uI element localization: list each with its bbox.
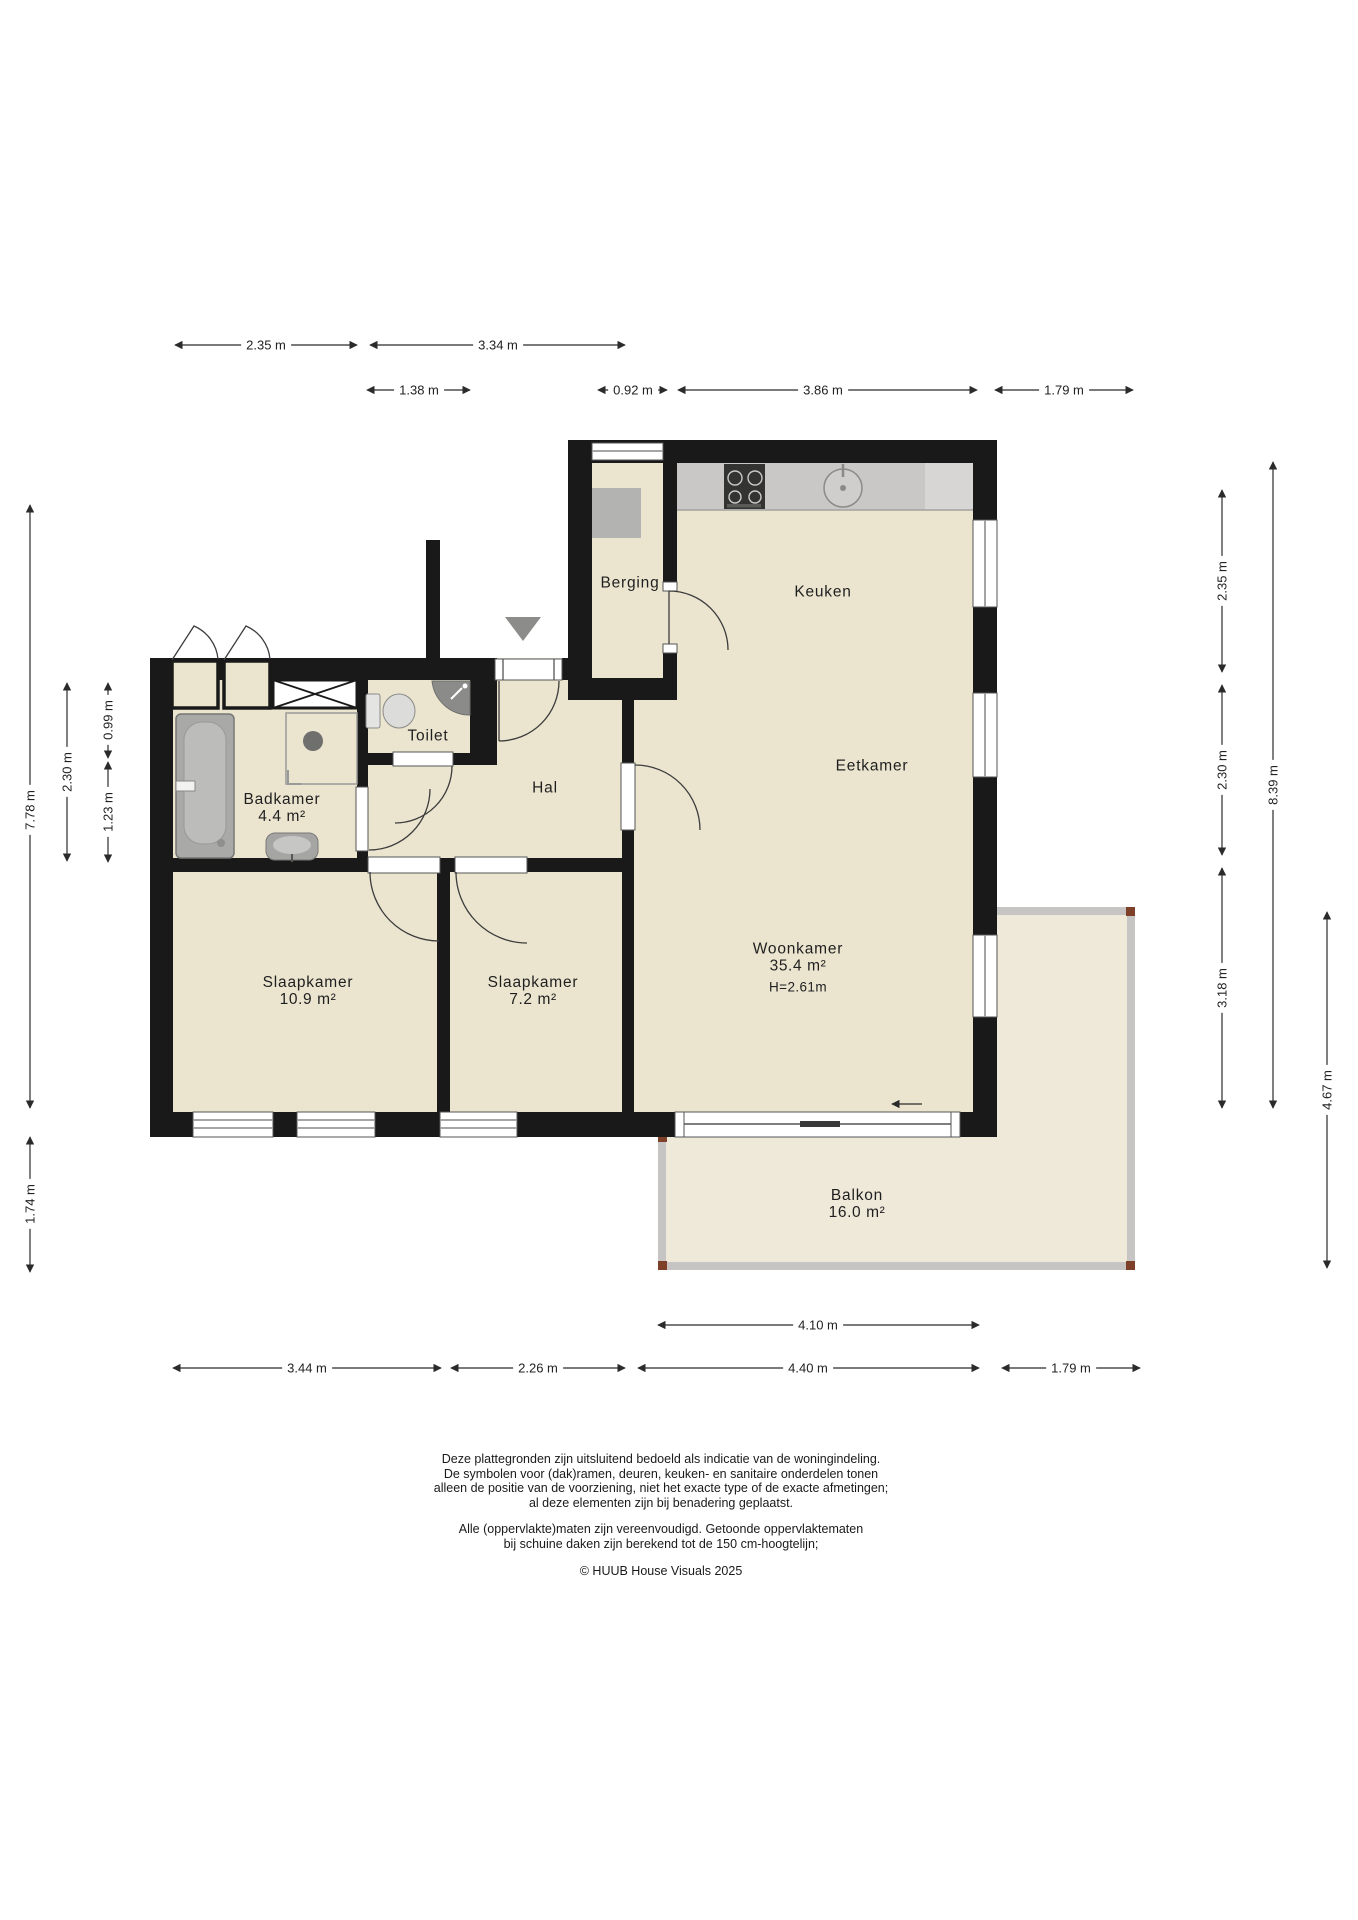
stove	[724, 464, 765, 509]
dimension-label: 3.86 m	[798, 383, 848, 398]
dimension-label: 4.67 m	[1320, 1065, 1335, 1115]
dimension-label: 0.92 m	[608, 383, 658, 398]
room-label-badkamer: Badkamer 4.4 m²	[243, 791, 320, 825]
room-label-slaapkamer-2: Slaapkamer 7.2 m²	[488, 974, 579, 1008]
meter-cupboard	[273, 680, 357, 708]
copyright-text: © HUUB House Visuals 2025	[311, 1564, 1011, 1578]
floorplan-canvas: Berging Keuken Eetkamer Toilet Hal Badka…	[0, 0, 1358, 1920]
room-label-eetkamer: Eetkamer	[836, 758, 909, 775]
dimension-label: 1.79 m	[1046, 1361, 1096, 1376]
dimension-label: 7.78 m	[23, 785, 38, 835]
dimension-label: 2.35 m	[1215, 556, 1230, 606]
room-label-toilet: Toilet	[408, 728, 449, 745]
dimension-label: 1.38 m	[394, 383, 444, 398]
room-label-hal: Hal	[532, 780, 558, 797]
dimension-label: 1.23 m	[101, 787, 116, 837]
dimension-label: 2.30 m	[1215, 745, 1230, 795]
dimension-label: 2.26 m	[513, 1361, 563, 1376]
dimension-label: 4.40 m	[783, 1361, 833, 1376]
dimension-label: 2.35 m	[241, 338, 291, 353]
floorplan-drawing	[0, 0, 1358, 1920]
room-label-slaapkamer-1: Slaapkamer 10.9 m²	[263, 974, 354, 1008]
washbasin	[266, 833, 318, 862]
room-label-keuken: Keuken	[794, 584, 851, 601]
room-label-berging: Berging	[600, 575, 659, 592]
room-label-balkon: Balkon 16.0 m²	[829, 1187, 886, 1221]
dimension-label: 1.79 m	[1039, 383, 1089, 398]
disclaimer-text: Deze plattegronden zijn uitsluitend bedo…	[311, 1452, 1011, 1552]
bathtub	[176, 714, 234, 858]
dimension-label: 1.74 m	[23, 1179, 38, 1229]
dimension-label: 3.18 m	[1215, 963, 1230, 1013]
room-label-woonkamer: Woonkamer 35.4 m² H=2.61m	[753, 941, 843, 996]
dimension-label: 2.30 m	[60, 747, 75, 797]
dimension-label: 8.39 m	[1266, 760, 1281, 810]
dimension-label: 4.10 m	[793, 1318, 843, 1333]
berging-cabinet	[592, 488, 641, 538]
dimension-label: 3.44 m	[282, 1361, 332, 1376]
dimension-label: 3.34 m	[473, 338, 523, 353]
dimension-label: 0.99 m	[101, 695, 116, 745]
entrance-recess	[438, 540, 568, 658]
toilet-fixture	[366, 694, 415, 728]
